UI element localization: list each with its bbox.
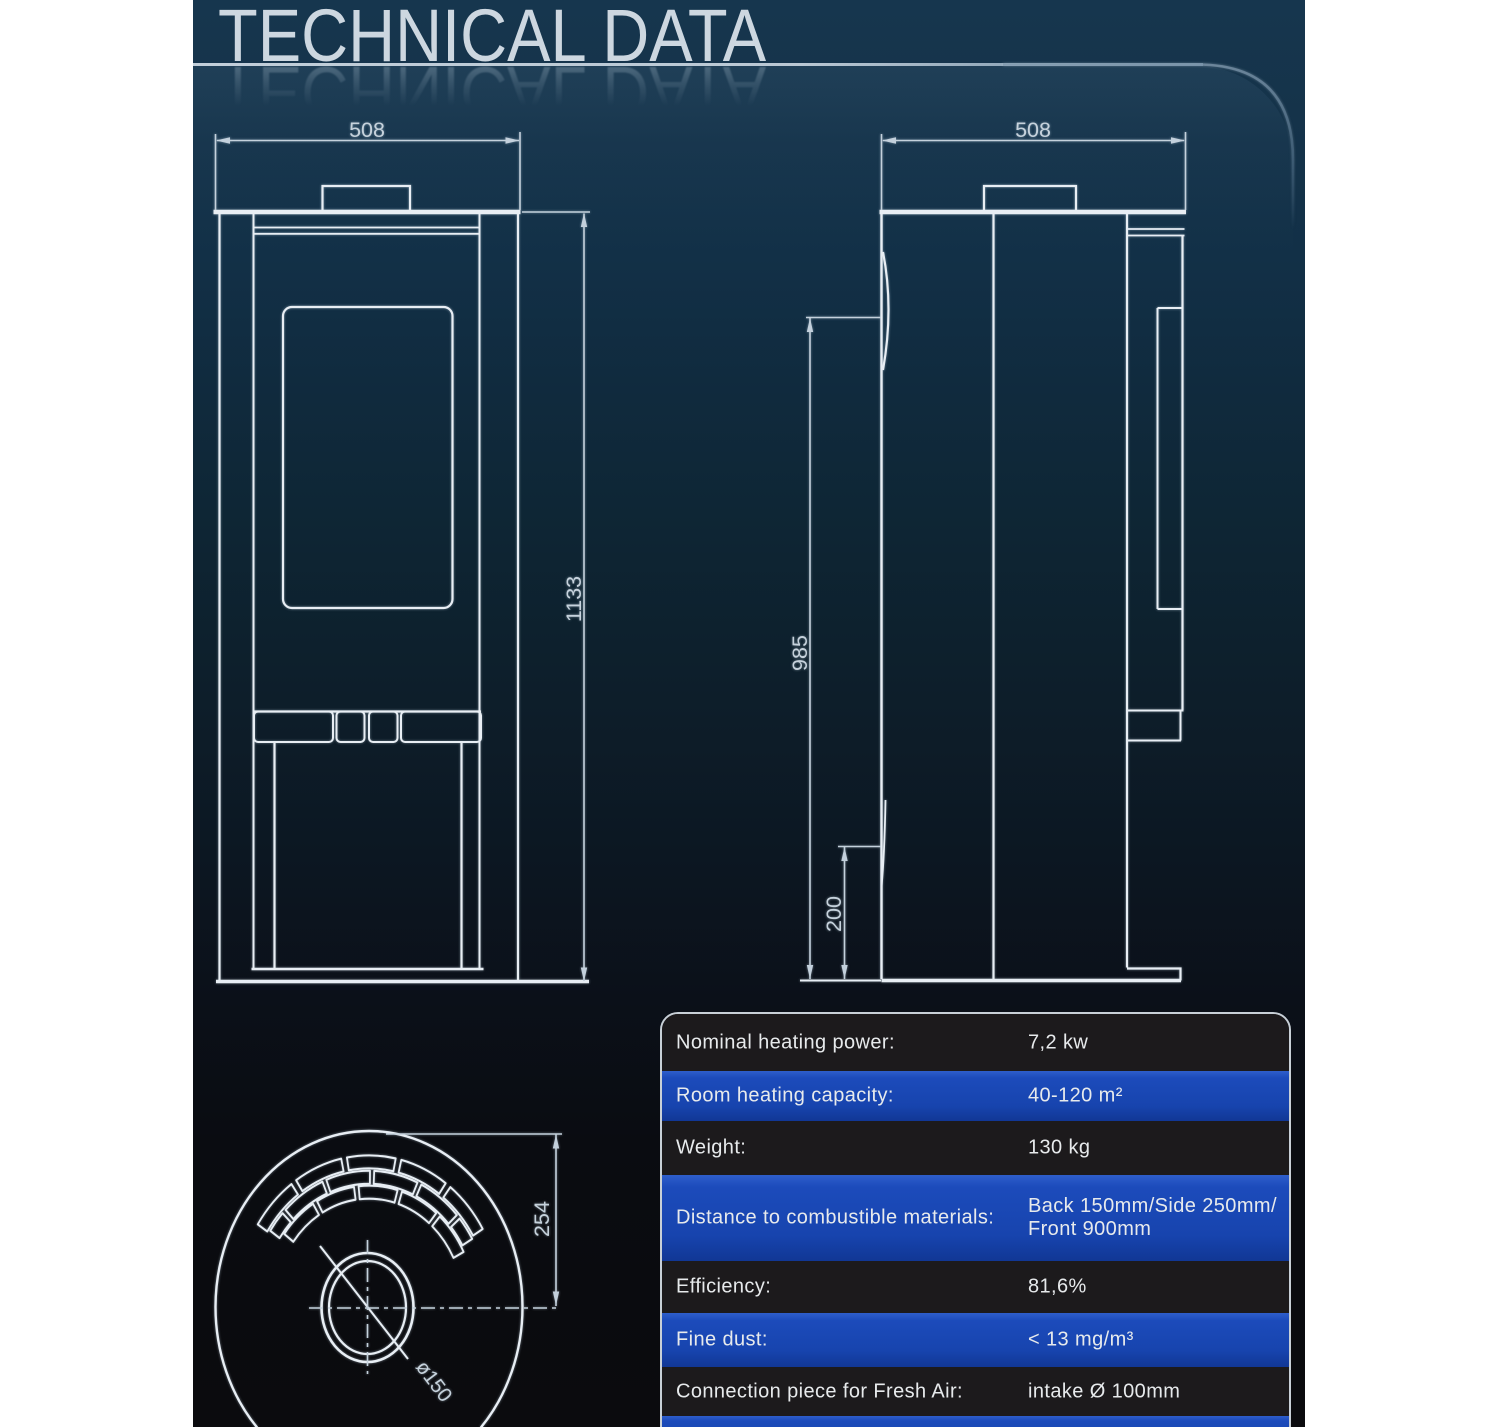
svg-text:985: 985 <box>788 635 812 671</box>
svg-text:200: 200 <box>822 896 846 932</box>
svg-text:ø150: ø150 <box>411 1357 456 1407</box>
svg-text:1133: 1133 <box>562 576 586 622</box>
svg-text:508: 508 <box>1015 118 1051 142</box>
svg-text:254: 254 <box>530 1201 554 1237</box>
svg-text:508: 508 <box>349 118 385 142</box>
